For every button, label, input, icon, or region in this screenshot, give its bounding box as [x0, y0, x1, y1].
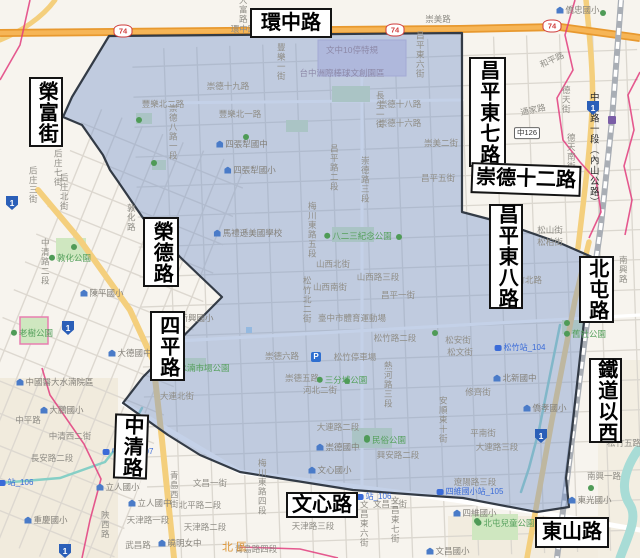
map-screenshot: 環中路一段大富路文中10停特規台中洲際棒球文創園區崇德十九路豐樂北二路豐樂北一路…: [0, 0, 640, 558]
basemap-graphics[interactable]: [0, 0, 640, 558]
